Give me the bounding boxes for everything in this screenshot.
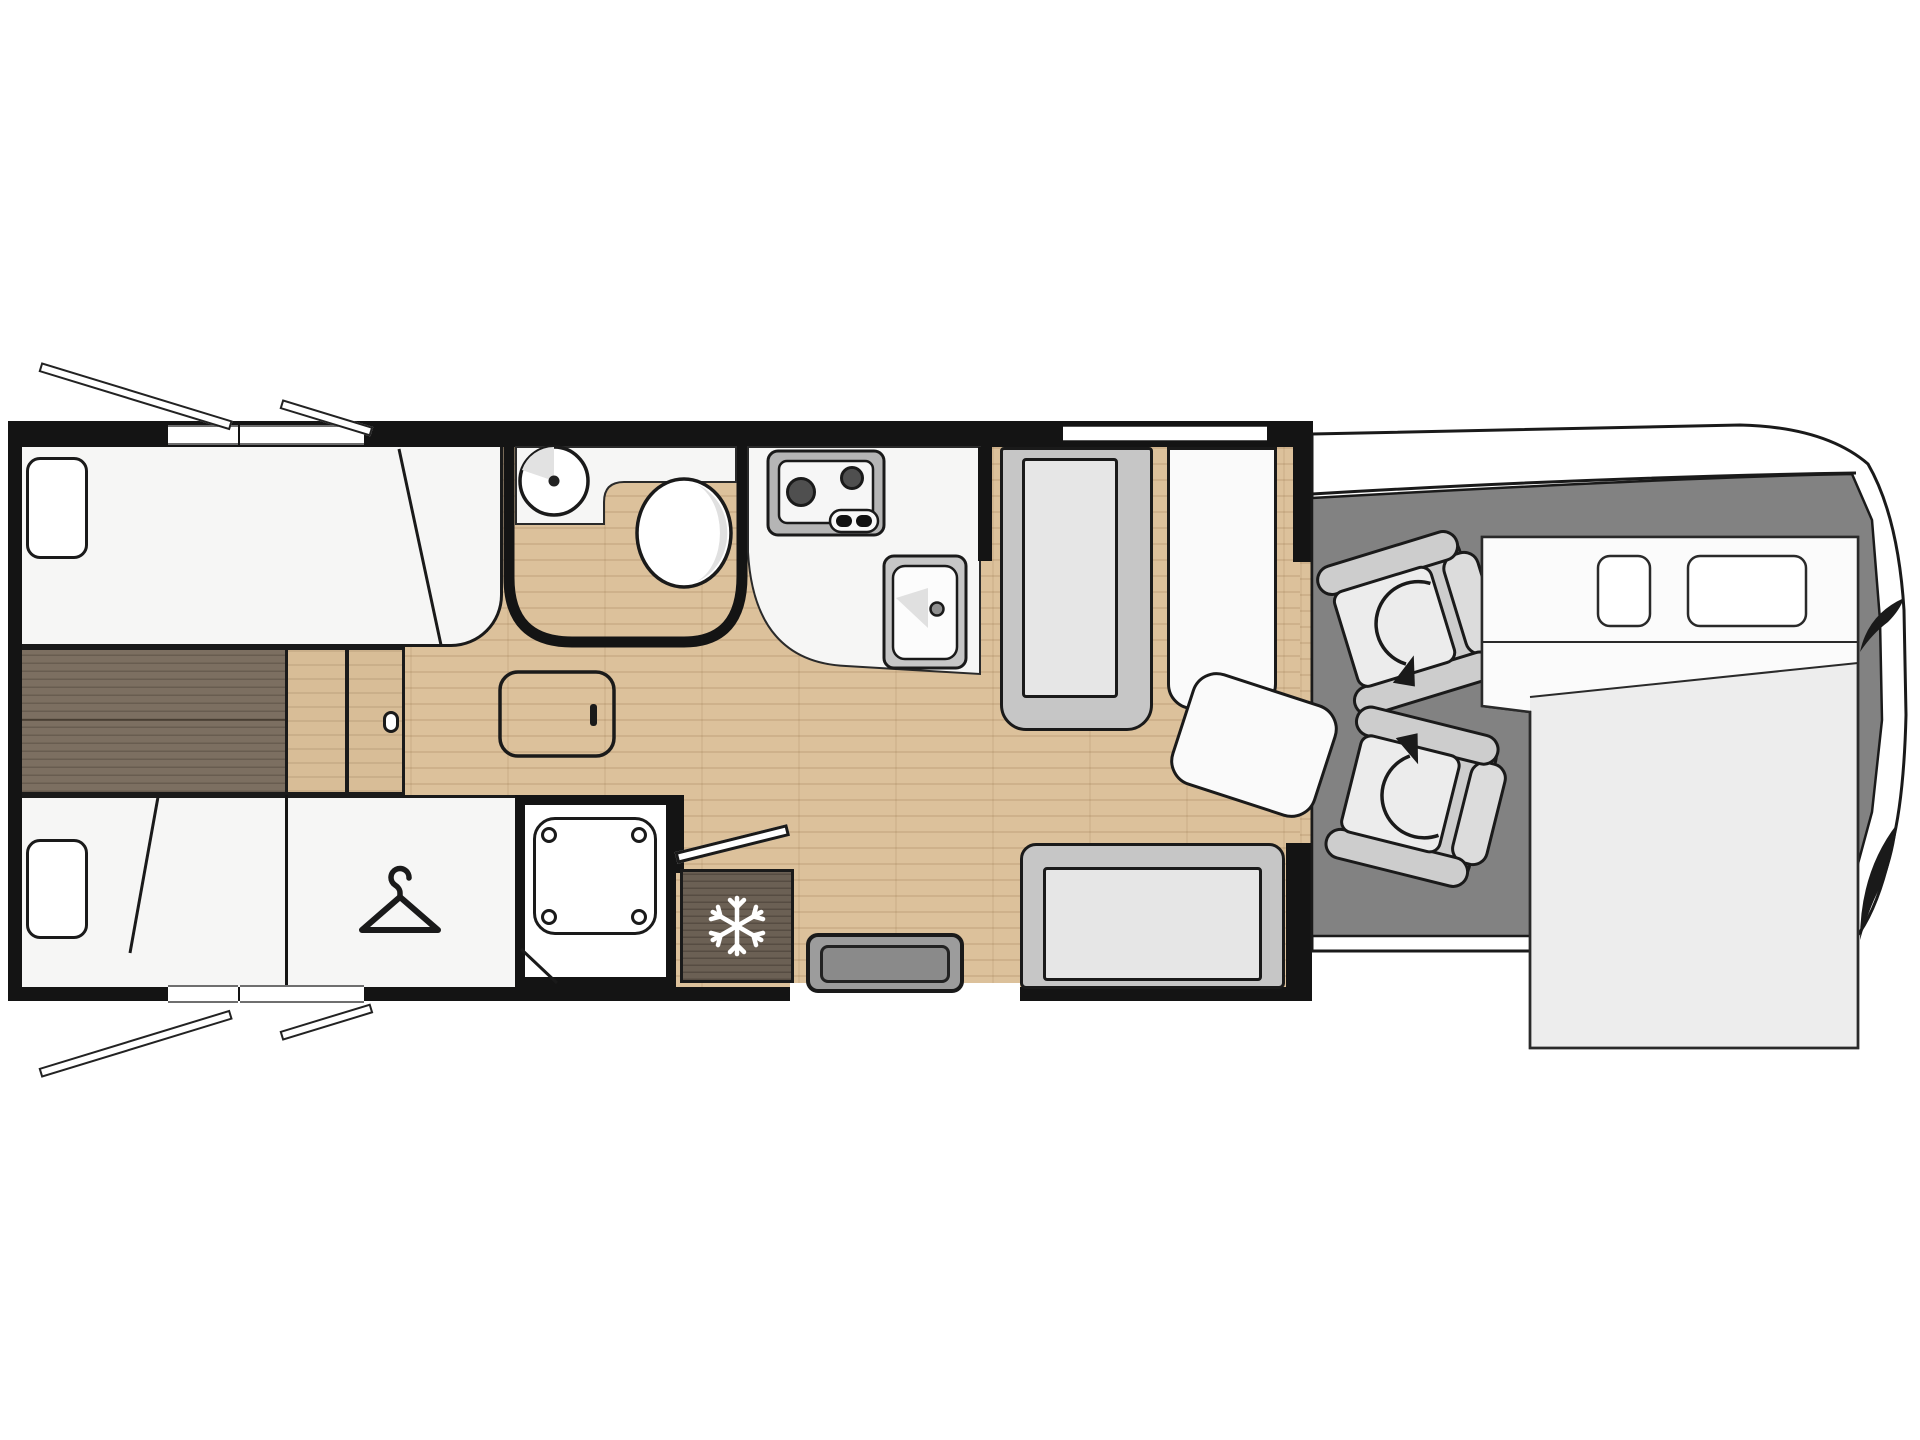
mirror-mark-top	[1860, 598, 1904, 652]
bed-pillow-large	[1688, 556, 1806, 626]
mirror-mark-bottom	[1860, 824, 1897, 940]
floorplan-stage	[0, 0, 1920, 1440]
front-bed-overlay	[0, 0, 1920, 1440]
bed-pillow-small	[1598, 556, 1650, 626]
